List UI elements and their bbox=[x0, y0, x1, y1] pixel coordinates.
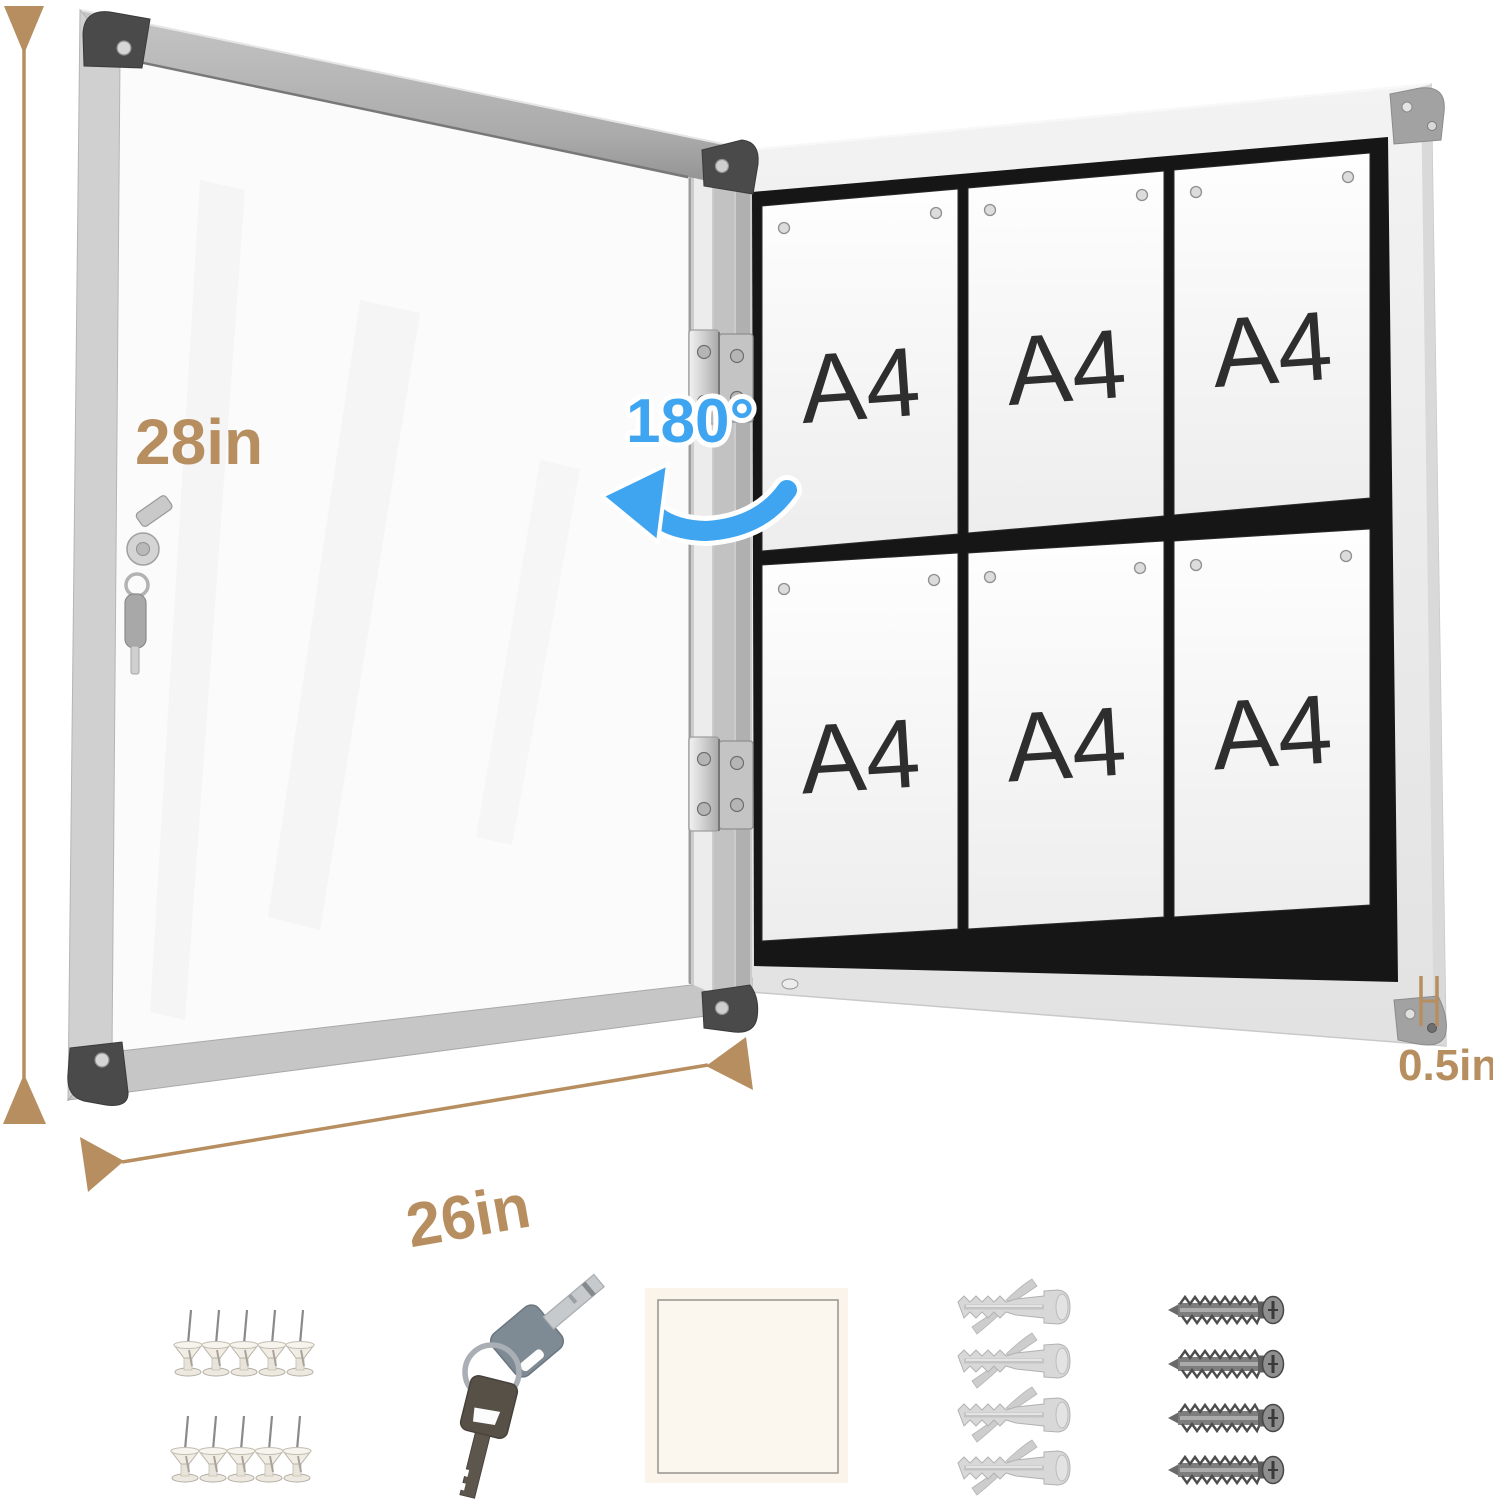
push-pin-icon bbox=[174, 1310, 202, 1376]
hinge-screw-icon bbox=[731, 799, 744, 812]
width-dimension-label: 26in bbox=[401, 1172, 535, 1261]
paper-pin-icon bbox=[929, 575, 940, 586]
height-arrow-bottom-head bbox=[3, 1074, 46, 1124]
wall-anchor-icon bbox=[958, 1387, 1070, 1442]
paper-pin-icon bbox=[985, 572, 996, 583]
a4-paper: A4 bbox=[1174, 529, 1370, 917]
screw-icon bbox=[1168, 1297, 1284, 1324]
rivet-icon bbox=[95, 1053, 109, 1067]
push-pin-icon bbox=[227, 1416, 255, 1482]
a4-paper: A4 bbox=[968, 171, 1164, 533]
push-pin-icon bbox=[283, 1416, 311, 1482]
push-pin-icon bbox=[258, 1310, 286, 1376]
rivet-icon bbox=[716, 1002, 729, 1015]
hinge-screw-icon bbox=[698, 753, 711, 766]
paper-label: A4 bbox=[1003, 685, 1129, 802]
push-pin-icon bbox=[286, 1310, 314, 1376]
paper-label: A4 bbox=[1208, 290, 1335, 408]
width-arrow-left-head bbox=[80, 1137, 124, 1192]
push-pin-icon bbox=[202, 1310, 230, 1376]
paper-label: A4 bbox=[1002, 308, 1129, 426]
accessory-push-pins bbox=[171, 1310, 314, 1482]
pad-inner-border bbox=[658, 1300, 838, 1473]
door-hinge bbox=[689, 737, 753, 831]
paper-pin-icon bbox=[779, 584, 790, 595]
paper-label: A4 bbox=[796, 326, 923, 444]
paper-pin-icon bbox=[1343, 172, 1354, 183]
keyhole-icon bbox=[137, 543, 150, 556]
paper-pin-icon bbox=[1191, 187, 1202, 198]
hanging-key-blade bbox=[131, 646, 139, 674]
door-corner-cap bbox=[83, 12, 150, 68]
rivet-icon bbox=[1405, 1009, 1415, 1019]
accessory-keys bbox=[443, 1260, 616, 1500]
a4-paper: A4 bbox=[762, 553, 958, 941]
paper-pin-icon bbox=[985, 205, 996, 216]
push-pin-icon bbox=[199, 1416, 227, 1482]
a4-paper: A4 bbox=[968, 541, 1164, 929]
height-dimension-label: 28in bbox=[135, 406, 263, 478]
paper-label: A4 bbox=[797, 697, 923, 814]
accessory-screws bbox=[1168, 1297, 1284, 1484]
paper-pin-icon bbox=[1135, 563, 1146, 574]
screw-icon bbox=[1168, 1405, 1284, 1432]
hinge-screw-icon bbox=[731, 350, 744, 363]
hanging-key-head bbox=[125, 594, 146, 648]
key-icon bbox=[487, 1260, 617, 1381]
display-board: A4 A4 A4 A4 A4 bbox=[748, 84, 1446, 1046]
key-icon bbox=[443, 1374, 519, 1500]
push-pin-icon bbox=[255, 1416, 283, 1482]
rivet-icon bbox=[716, 160, 729, 173]
cabinet-door bbox=[68, 10, 758, 1105]
rivet-icon bbox=[1428, 1024, 1437, 1033]
paper-pin-icon bbox=[1191, 560, 1202, 571]
hinge-screw-icon bbox=[731, 757, 744, 770]
wall-anchor-icon bbox=[958, 1333, 1070, 1388]
accessory-wall-anchors bbox=[958, 1279, 1070, 1495]
rivet-icon bbox=[1428, 122, 1437, 131]
paper-pin-icon bbox=[931, 208, 942, 219]
door-hinge-bar-stripe bbox=[694, 178, 712, 993]
depth-dimension-label: 0.5in bbox=[1398, 1041, 1493, 1090]
paper-label: A4 bbox=[1209, 673, 1335, 790]
screw-icon bbox=[1168, 1457, 1284, 1484]
wall-anchor-icon bbox=[958, 1440, 1070, 1495]
push-pin-icon bbox=[171, 1416, 199, 1482]
height-arrow-top-head bbox=[4, 6, 44, 54]
rivet-icon bbox=[1402, 102, 1412, 112]
paper-pin-icon bbox=[1137, 190, 1148, 201]
door-hinge-bar-stripe bbox=[714, 183, 734, 1000]
hinge-screw-icon bbox=[698, 803, 711, 816]
door-corner-cap bbox=[702, 985, 758, 1032]
board-corner-cap bbox=[1390, 88, 1444, 144]
door-hinge-bar-stripe bbox=[736, 187, 750, 1008]
push-pin-icon bbox=[230, 1310, 258, 1376]
paper-pin-icon bbox=[779, 223, 790, 234]
paper-pin-icon bbox=[1341, 551, 1352, 562]
wall-anchor-icon bbox=[958, 1279, 1070, 1334]
width-arrow-right-head bbox=[706, 1037, 753, 1090]
open-angle-label: 180° bbox=[626, 387, 754, 456]
product-diagram: A4 A4 A4 A4 A4 bbox=[0, 0, 1493, 1500]
screw-icon bbox=[1168, 1351, 1284, 1378]
door-left-bar bbox=[68, 10, 120, 1100]
height-dimension-arrow bbox=[3, 6, 46, 1124]
a4-paper: A4 bbox=[1174, 153, 1370, 515]
door-corner-cap bbox=[702, 140, 758, 194]
rivet-icon bbox=[117, 41, 131, 55]
hinge-screw-icon bbox=[698, 346, 711, 359]
accessory-adhesive-pad bbox=[645, 1288, 848, 1483]
door-corner-cap bbox=[68, 1042, 128, 1105]
rivet-icon bbox=[782, 979, 798, 989]
